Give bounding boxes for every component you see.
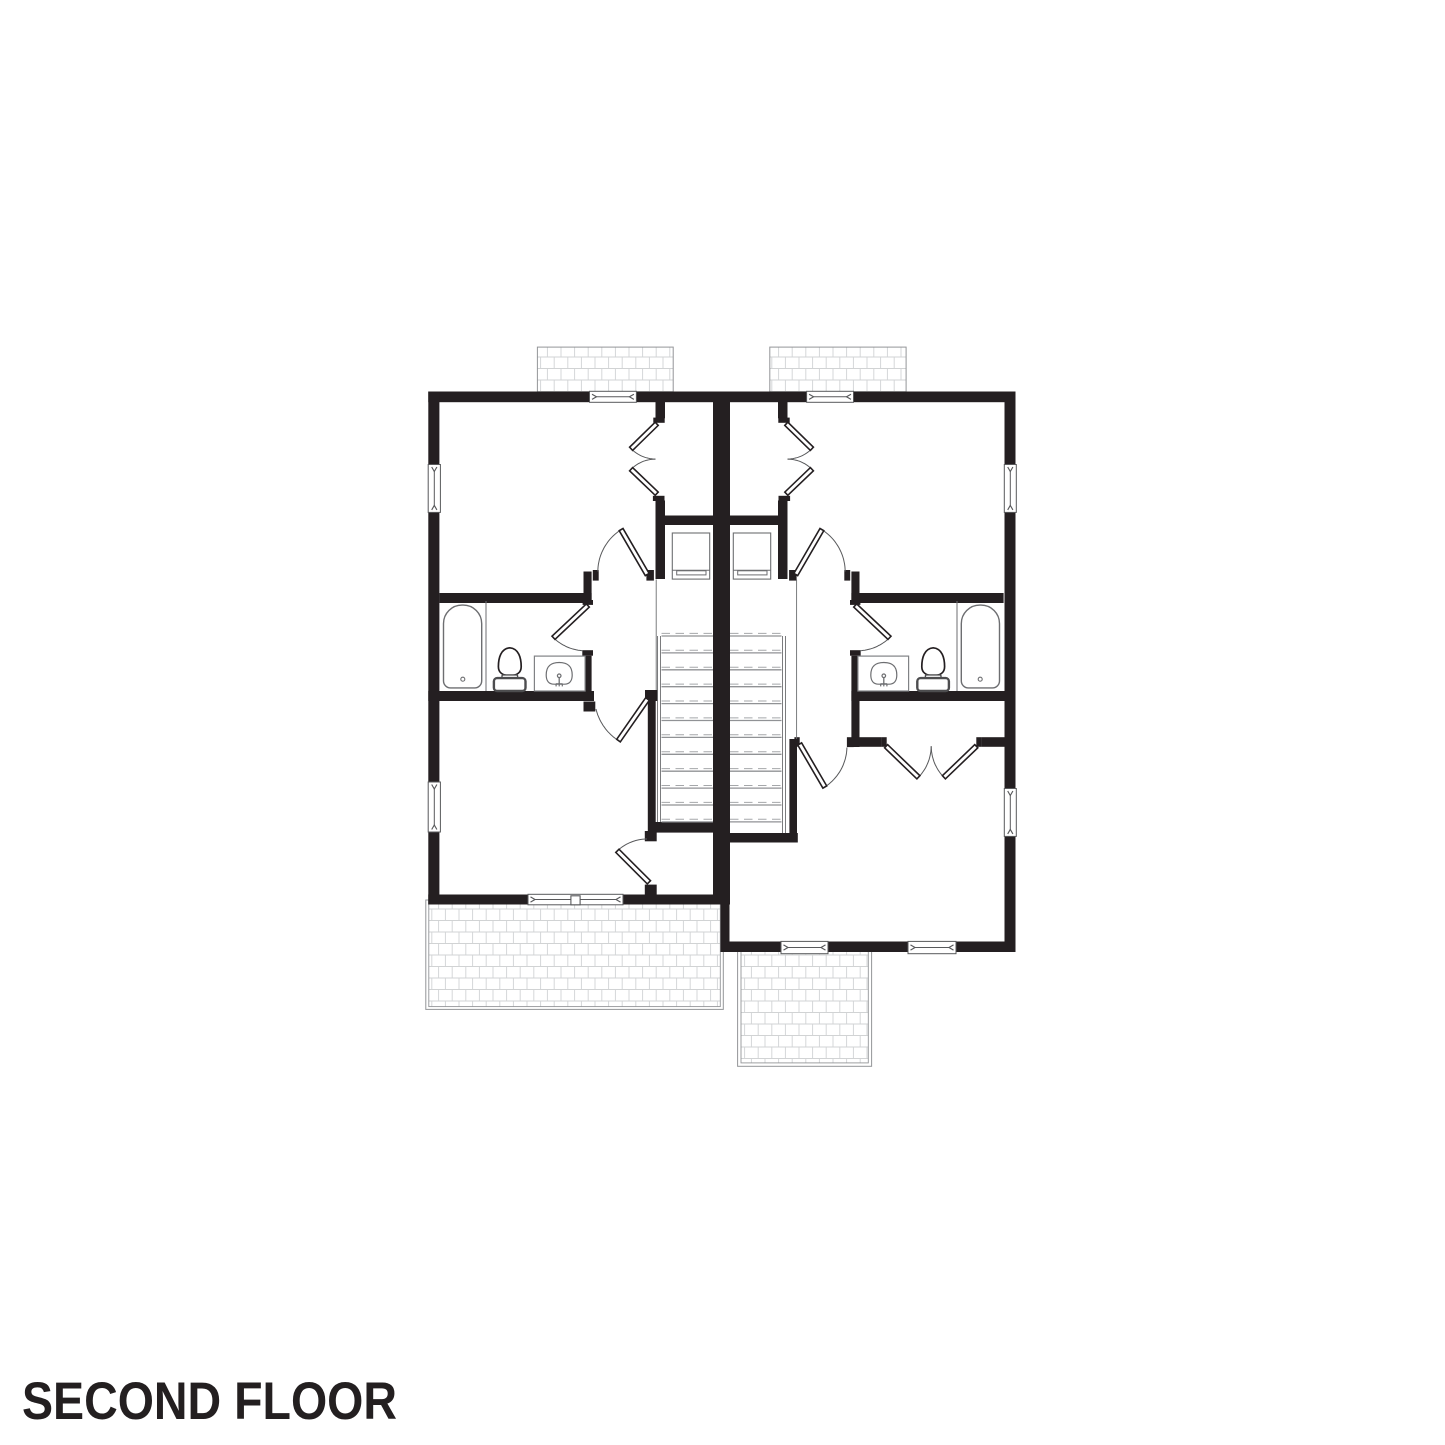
svg-text:SECOND FLOOR: SECOND FLOOR	[22, 1372, 397, 1431]
